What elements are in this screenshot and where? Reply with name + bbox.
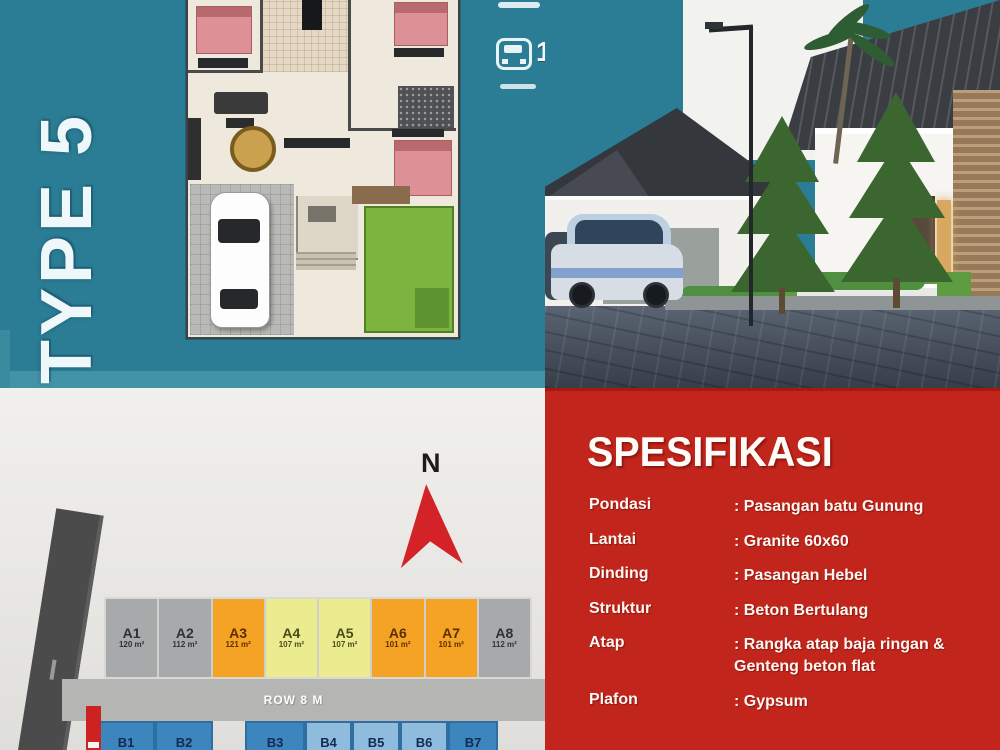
specification-panel: SPESIFIKASI Pondasi : Pasangan batu Gunu…: [545, 388, 1000, 750]
spec-row: Pondasi : Pasangan batu Gunung: [589, 496, 979, 518]
floorplan-room-label-bar: [394, 48, 444, 57]
site-entrance-marker: [86, 706, 101, 750]
floorplan-room-label-bar: [198, 58, 248, 68]
floor-plan: [186, 0, 460, 339]
street-lamp-pole: [749, 26, 753, 326]
photo-car-windows: [575, 220, 663, 246]
plot-a-tile: A4 107 m²: [266, 599, 317, 677]
plot-row-a: A1 120 m² A2 112 m² A3 121 m² A4 107 m² …: [104, 597, 532, 679]
floorplan-sofa: [214, 92, 268, 114]
spec-row: Plafon : Gypsum: [589, 691, 979, 713]
plot-b-tile: B1: [97, 721, 155, 750]
floorplan-steps: [296, 252, 356, 270]
plot-a-tile: A7 101 m²: [426, 599, 477, 677]
floorplan-wall: [188, 70, 263, 73]
plot-b-tile: B3: [245, 721, 305, 750]
floorplan-rug: [230, 126, 276, 172]
floorplan-room-label-bar: [392, 129, 444, 137]
plot-row-b: B1 B2 B3 B4 B5 B6 B7: [0, 721, 545, 750]
plot-b-tile: B2: [155, 721, 213, 750]
plot-a-tile: A3 121 m²: [213, 599, 264, 677]
plot-a-tile: A8 112 m²: [479, 599, 530, 677]
photo-pavement: [545, 306, 1000, 388]
floorplan-utility: [188, 118, 201, 180]
row-road: ROW 8 M: [62, 679, 545, 721]
floorplan-car: [210, 192, 270, 328]
north-arrow-icon: [395, 482, 463, 568]
plot-b-tile: B5: [352, 721, 400, 750]
spec-row: Struktur : Beton Bertulang: [589, 600, 979, 622]
plot-a-tile: A5 107 m²: [319, 599, 370, 677]
cropped-icon-fragment: [500, 84, 536, 89]
floorplan-deck: [352, 186, 410, 204]
plot-b-tile: B7: [448, 721, 498, 750]
photo-car-wheel: [643, 282, 669, 308]
houses-photo: [545, 0, 1000, 388]
plot-b-tile: B6: [400, 721, 448, 750]
floorplan-wall: [348, 0, 351, 130]
cropped-icon-fragment: [498, 2, 540, 8]
plot-a-tile: A2 112 m²: [159, 599, 210, 677]
plot-a-tile: A1 120 m²: [106, 599, 157, 677]
photo-car-stripe: [551, 268, 683, 278]
photo-car-wheel: [569, 282, 595, 308]
house-type-label: TYPE 5: [26, 0, 108, 384]
plot-a-tile: A6 101 m²: [372, 599, 423, 677]
floorplan-kitchen: [398, 86, 454, 128]
floorplan-bed: [196, 6, 252, 54]
teal-panel-left-stripe: [0, 330, 10, 388]
tree-trunk: [893, 278, 900, 308]
floorplan-terrace: [296, 196, 358, 260]
photo-curb: [665, 296, 1000, 310]
site-plan: N A1 120 m² A2 112 m² A3 121 m² A4 107 m…: [0, 388, 545, 750]
floorplan-wall: [260, 0, 263, 72]
plot-b-tile: B4: [305, 721, 352, 750]
spec-row: Atap : Rangka atap baja ringan & Genteng…: [589, 634, 979, 677]
floorplan-room-label-bar: [284, 138, 350, 148]
spec-list: Pondasi : Pasangan batu Gunung Lantai : …: [589, 496, 979, 725]
road-width-label: ROW 8 M: [264, 693, 324, 707]
floorplan-appliance: [302, 0, 322, 30]
street-lamp-head: [705, 22, 723, 29]
floorplan-bed: [394, 2, 448, 46]
flyer-canvas: TYPE 5 1: [0, 0, 1000, 750]
spec-title: SPESIFIKASI: [587, 428, 833, 476]
spec-row: Dinding : Pasangan Hebel: [589, 565, 979, 587]
spec-row: Lantai : Granite 60x60: [589, 531, 979, 553]
tree-trunk: [779, 288, 785, 314]
carport-car-icon: [496, 38, 532, 70]
floorplan-garden: [364, 206, 454, 333]
compass-north-label: N: [421, 448, 441, 479]
